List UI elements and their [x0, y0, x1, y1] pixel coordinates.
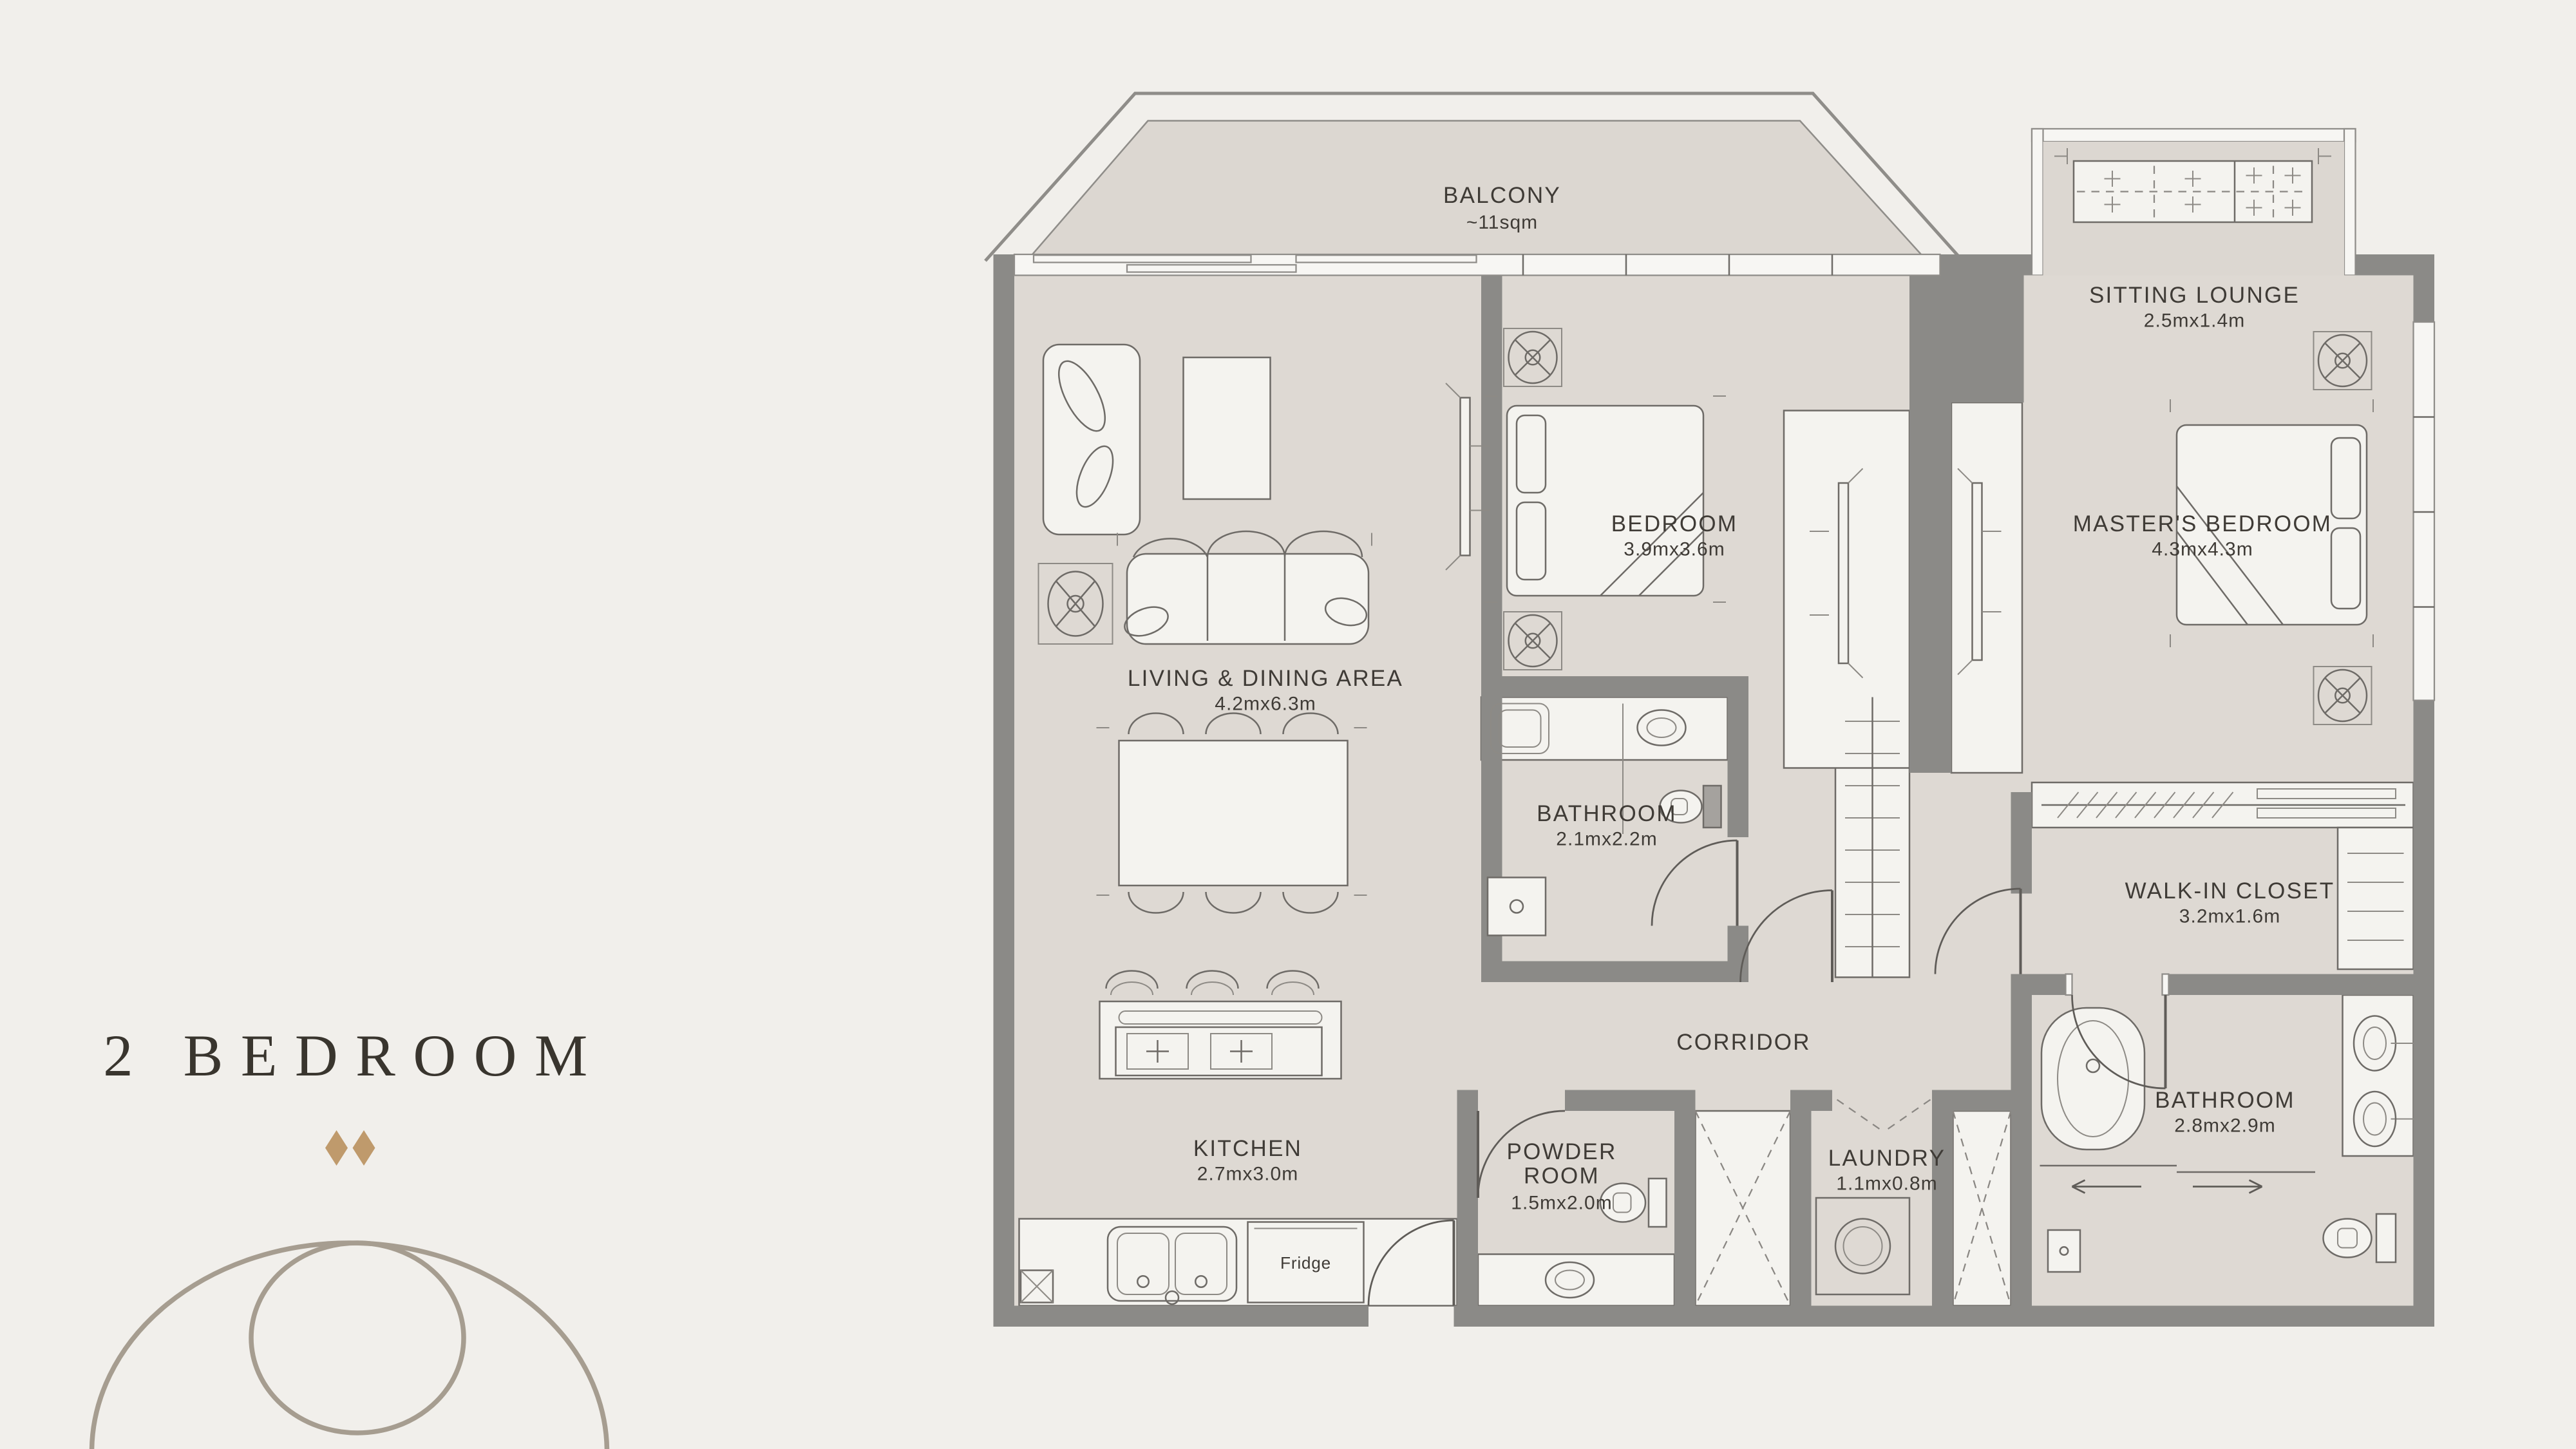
- room-label-bathroom: BATHROOM 2.1mx2.2m: [1537, 801, 1677, 850]
- svg-text:2.8mx2.9m: 2.8mx2.9m: [2174, 1115, 2275, 1137]
- svg-text:LIVING & DINING AREA: LIVING & DINING AREA: [1128, 666, 1403, 691]
- floor-plan-canvas: 2 BEDROOM: [0, 0, 2576, 1449]
- room-label-kitchen: KITCHEN 2.7mx3.0m: [1193, 1136, 1302, 1185]
- bathtub-icon: [2041, 1008, 2145, 1150]
- svg-text:ROOM: ROOM: [1524, 1164, 1600, 1189]
- floor-plan: Fridge: [985, 93, 2434, 1327]
- svg-text:1.1mx0.8m: 1.1mx0.8m: [1836, 1173, 1937, 1195]
- svg-text:MASTER'S BEDROOM: MASTER'S BEDROOM: [2073, 511, 2332, 536]
- svg-text:4.2mx6.3m: 4.2mx6.3m: [1215, 694, 1316, 715]
- toilet-icon: [2324, 1214, 2396, 1262]
- svg-text:2.5mx1.4m: 2.5mx1.4m: [2144, 310, 2245, 332]
- svg-text:3.9mx3.6m: 3.9mx3.6m: [1624, 539, 1725, 560]
- svg-text:4.3mx4.3m: 4.3mx4.3m: [2152, 539, 2253, 560]
- room-label-laundry: LAUNDRY 1.1mx0.8m: [1828, 1146, 1946, 1195]
- fridge-box: Fridge: [1248, 1222, 1364, 1303]
- room-label-master-bathroom: BATHROOM 2.8mx2.9m: [2155, 1088, 2295, 1137]
- svg-text:1.5mx2.0m: 1.5mx2.0m: [1511, 1193, 1612, 1214]
- svg-text:BATHROOM: BATHROOM: [1537, 801, 1677, 826]
- svg-text:2.7mx3.0m: 2.7mx3.0m: [1197, 1164, 1298, 1185]
- svg-text:BALCONY: BALCONY: [1443, 183, 1561, 208]
- drain-box-icon: [1021, 1271, 1053, 1303]
- svg-text:KITCHEN: KITCHEN: [1193, 1136, 1302, 1161]
- room-label-bedroom: BEDROOM 3.9mx3.6m: [1611, 511, 1738, 560]
- svg-text:CORRIDOR: CORRIDOR: [1676, 1030, 1811, 1055]
- sitting-lounge-bay: [2032, 129, 2356, 276]
- svg-text:WALK-IN CLOSET: WALK-IN CLOSET: [2125, 878, 2335, 904]
- svg-text:2.1mx2.2m: 2.1mx2.2m: [1556, 829, 1657, 850]
- page-title: 2 BEDROOM: [103, 1023, 605, 1089]
- svg-text:BEDROOM: BEDROOM: [1611, 511, 1738, 536]
- svg-text:LAUNDRY: LAUNDRY: [1828, 1146, 1946, 1171]
- svg-text:BATHROOM: BATHROOM: [2155, 1088, 2295, 1113]
- fridge-label: Fridge: [1280, 1253, 1331, 1273]
- room-label-corridor: CORRIDOR: [1676, 1030, 1811, 1055]
- svg-text:SITTING LOUNGE: SITTING LOUNGE: [2089, 283, 2300, 308]
- floorplan-page: 2 BEDROOM: [0, 0, 2576, 1449]
- svg-text:POWDER: POWDER: [1507, 1139, 1617, 1164]
- shower-icon: [1488, 878, 1546, 936]
- svg-text:~11sqm: ~11sqm: [1466, 212, 1538, 233]
- svg-text:3.2mx1.6m: 3.2mx1.6m: [2179, 906, 2280, 927]
